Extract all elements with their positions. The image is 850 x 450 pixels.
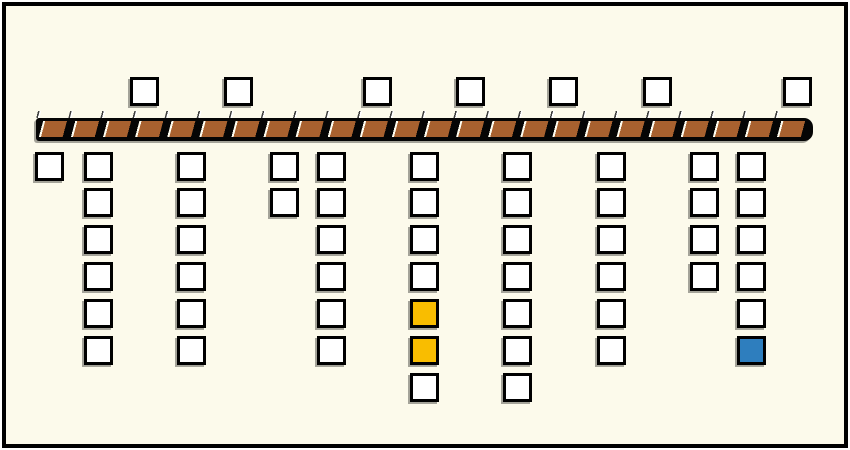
white-box — [597, 299, 626, 328]
white-box — [410, 373, 439, 402]
white-box — [177, 336, 206, 365]
white-box — [317, 262, 346, 291]
white-box — [177, 188, 206, 217]
white-box — [84, 225, 113, 254]
white-box — [177, 152, 206, 181]
white-box — [737, 152, 766, 181]
white-box — [503, 152, 532, 181]
white-box — [317, 299, 346, 328]
white-box — [690, 188, 719, 217]
white-box — [177, 262, 206, 291]
stage — [0, 0, 850, 450]
white-box — [317, 188, 346, 217]
white-box — [737, 225, 766, 254]
white-box — [410, 152, 439, 181]
white-box — [597, 262, 626, 291]
white-box — [177, 299, 206, 328]
yellow-box — [410, 299, 439, 328]
white-box — [363, 77, 392, 106]
white-box — [317, 336, 346, 365]
white-box — [597, 336, 626, 365]
white-box — [270, 152, 299, 181]
white-box — [597, 188, 626, 217]
white-box — [503, 299, 532, 328]
bar-tick-marks — [36, 111, 803, 118]
white-box — [270, 188, 299, 217]
bar-body — [36, 118, 813, 141]
white-box — [690, 225, 719, 254]
white-box — [456, 77, 485, 106]
white-box — [737, 188, 766, 217]
white-box — [737, 262, 766, 291]
white-box — [737, 299, 766, 328]
white-box — [84, 262, 113, 291]
white-box — [84, 188, 113, 217]
white-box — [410, 262, 439, 291]
white-box — [503, 262, 532, 291]
white-box — [643, 77, 672, 106]
white-box — [317, 225, 346, 254]
white-box — [84, 299, 113, 328]
white-box — [503, 336, 532, 365]
white-box — [690, 152, 719, 181]
white-box — [503, 225, 532, 254]
white-box — [35, 152, 64, 181]
white-box — [503, 188, 532, 217]
white-box — [317, 152, 346, 181]
white-box — [783, 77, 812, 106]
white-box — [410, 188, 439, 217]
yellow-box — [410, 336, 439, 365]
white-box — [549, 77, 578, 106]
white-box — [224, 77, 253, 106]
white-box — [597, 225, 626, 254]
white-box — [84, 152, 113, 181]
white-box — [503, 373, 532, 402]
blue-box — [737, 336, 766, 365]
white-box — [410, 225, 439, 254]
bar-stripes — [39, 121, 807, 137]
diagram-frame — [0, 0, 850, 450]
white-box — [177, 225, 206, 254]
white-box — [84, 336, 113, 365]
white-box — [597, 152, 626, 181]
white-box — [130, 77, 159, 106]
white-box — [690, 262, 719, 291]
